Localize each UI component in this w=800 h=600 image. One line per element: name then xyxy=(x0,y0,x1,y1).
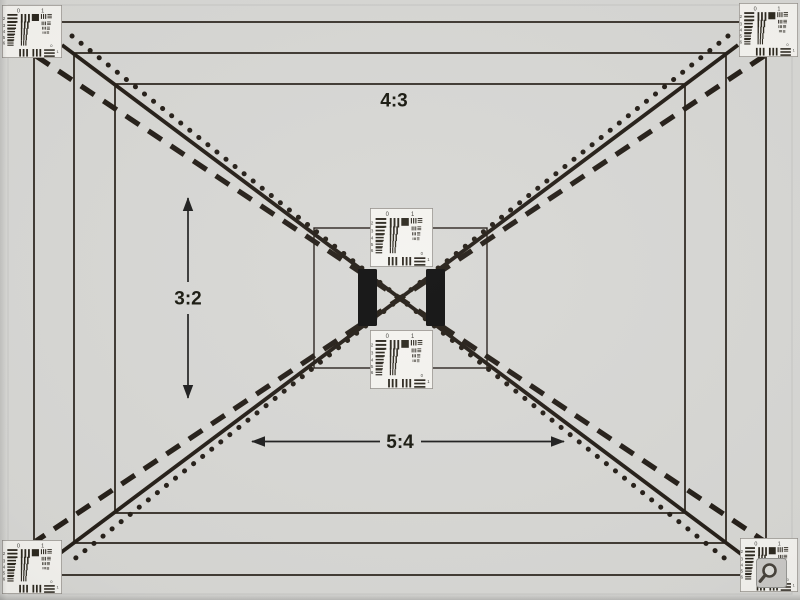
test-chart-photo: 0 1 2 3 4 xyxy=(0,0,800,600)
resolution-chart-center-bottom xyxy=(370,330,432,388)
resolution-chart-center-top xyxy=(370,208,432,266)
aspect-label-5-4: 5:4 xyxy=(386,432,414,453)
aspect-label-4-3: 4:3 xyxy=(380,91,407,112)
test-chart-svg: 0 1 2 3 4 xyxy=(0,0,800,600)
resolution-chart-top-left xyxy=(2,5,61,57)
aspect-label-3-2: 3:2 xyxy=(174,289,201,310)
resolution-chart-bottom-left xyxy=(2,540,61,593)
resolution-chart-top-right xyxy=(739,3,797,56)
center-black-bar-right xyxy=(426,269,445,326)
center-black-bar-left xyxy=(358,269,377,326)
magnifier-icon[interactable] xyxy=(757,559,787,588)
